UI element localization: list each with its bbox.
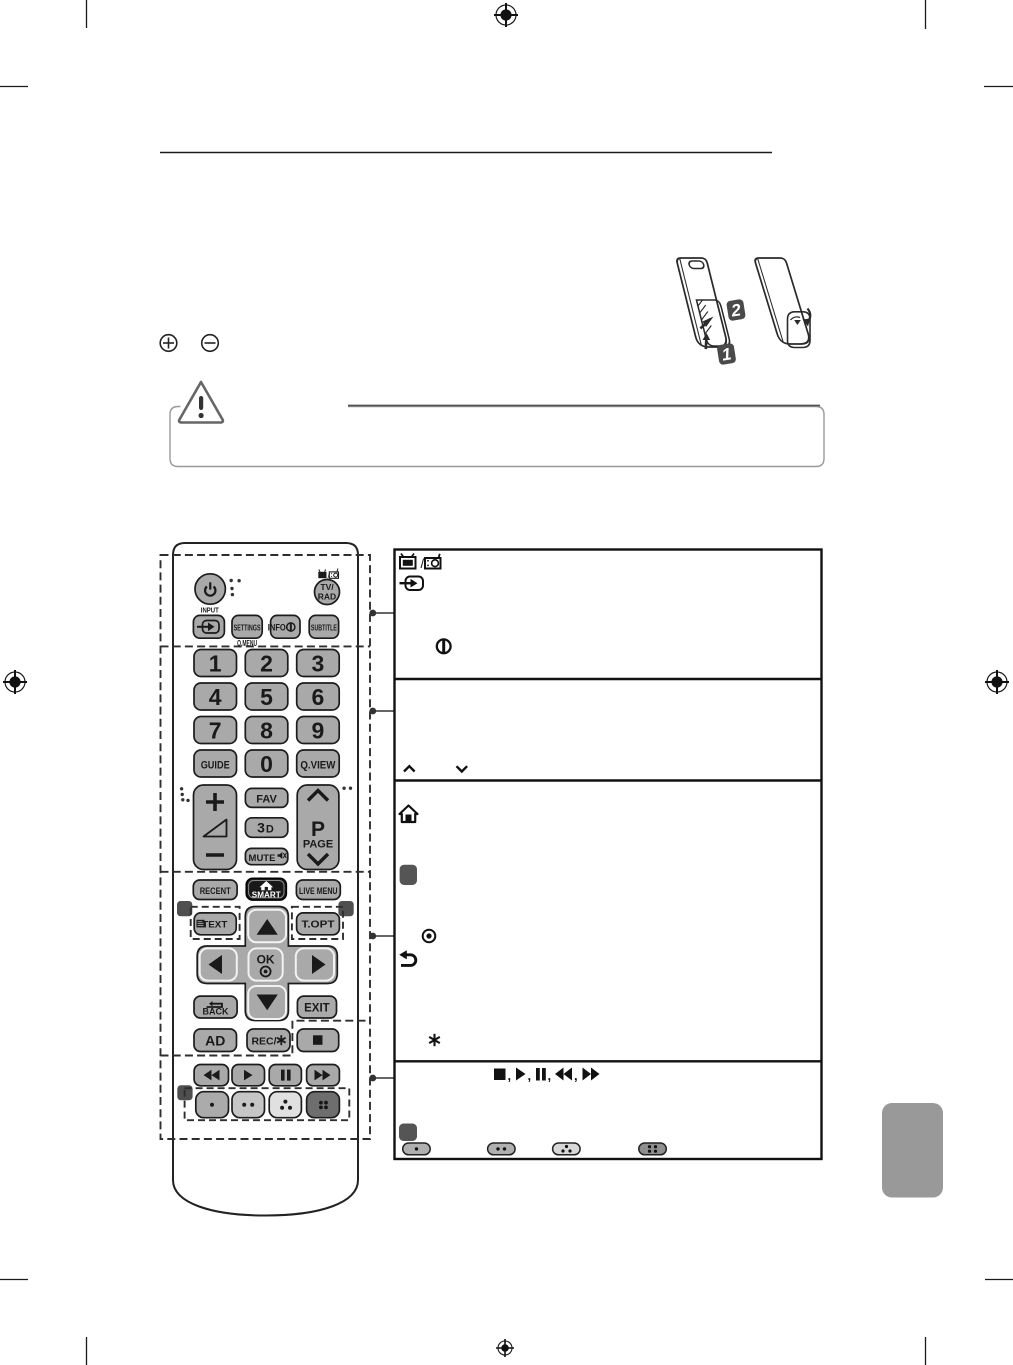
svg-text:INFO: INFO [268, 623, 286, 633]
svg-text:T.OPT: T.OPT [302, 920, 335, 931]
svg-text:3: 3 [257, 820, 265, 836]
svg-text:FAV: FAV [256, 794, 277, 806]
svg-text:,: , [508, 1068, 512, 1083]
svg-text:INPUT: INPUT [201, 606, 219, 615]
svg-text:,: , [548, 1068, 552, 1083]
svg-text:BACK: BACK [203, 1007, 229, 1017]
svg-text:RECENT: RECENT [200, 886, 231, 896]
svg-text:SUBTITLE: SUBTITLE [311, 623, 337, 633]
svg-text:PAGE: PAGE [303, 839, 333, 851]
svg-text:TV/: TV/ [320, 582, 334, 592]
svg-text:GUIDE: GUIDE [201, 760, 230, 772]
svg-text:Q.VIEW: Q.VIEW [300, 760, 336, 772]
svg-text:REC/: REC/ [251, 1035, 276, 1047]
svg-text:,: , [528, 1068, 532, 1083]
svg-text:D: D [266, 824, 274, 836]
svg-text:3: 3 [312, 651, 325, 677]
svg-text:2: 2 [260, 651, 273, 677]
svg-text:/: / [421, 556, 425, 571]
svg-text:1: 1 [209, 651, 222, 677]
svg-text:6: 6 [312, 684, 325, 710]
svg-text:EXIT: EXIT [304, 1003, 330, 1015]
svg-text:SETTINGS: SETTINGS [234, 623, 261, 633]
svg-text:LIVE MENU: LIVE MENU [299, 886, 338, 896]
svg-text:9: 9 [312, 718, 325, 744]
svg-text:,: , [574, 1068, 578, 1083]
svg-text:7: 7 [209, 718, 222, 744]
svg-text:0: 0 [260, 751, 273, 777]
svg-text:5: 5 [260, 684, 273, 710]
svg-text:OK: OK [257, 953, 275, 967]
svg-text:TEXT: TEXT [202, 919, 227, 930]
svg-text:RAD: RAD [318, 592, 336, 602]
svg-text:SMART: SMART [252, 889, 282, 899]
svg-text:4: 4 [209, 684, 222, 710]
svg-text:AD: AD [205, 1033, 225, 1049]
svg-text:MUTE: MUTE [249, 853, 276, 864]
svg-text:8: 8 [260, 718, 273, 744]
